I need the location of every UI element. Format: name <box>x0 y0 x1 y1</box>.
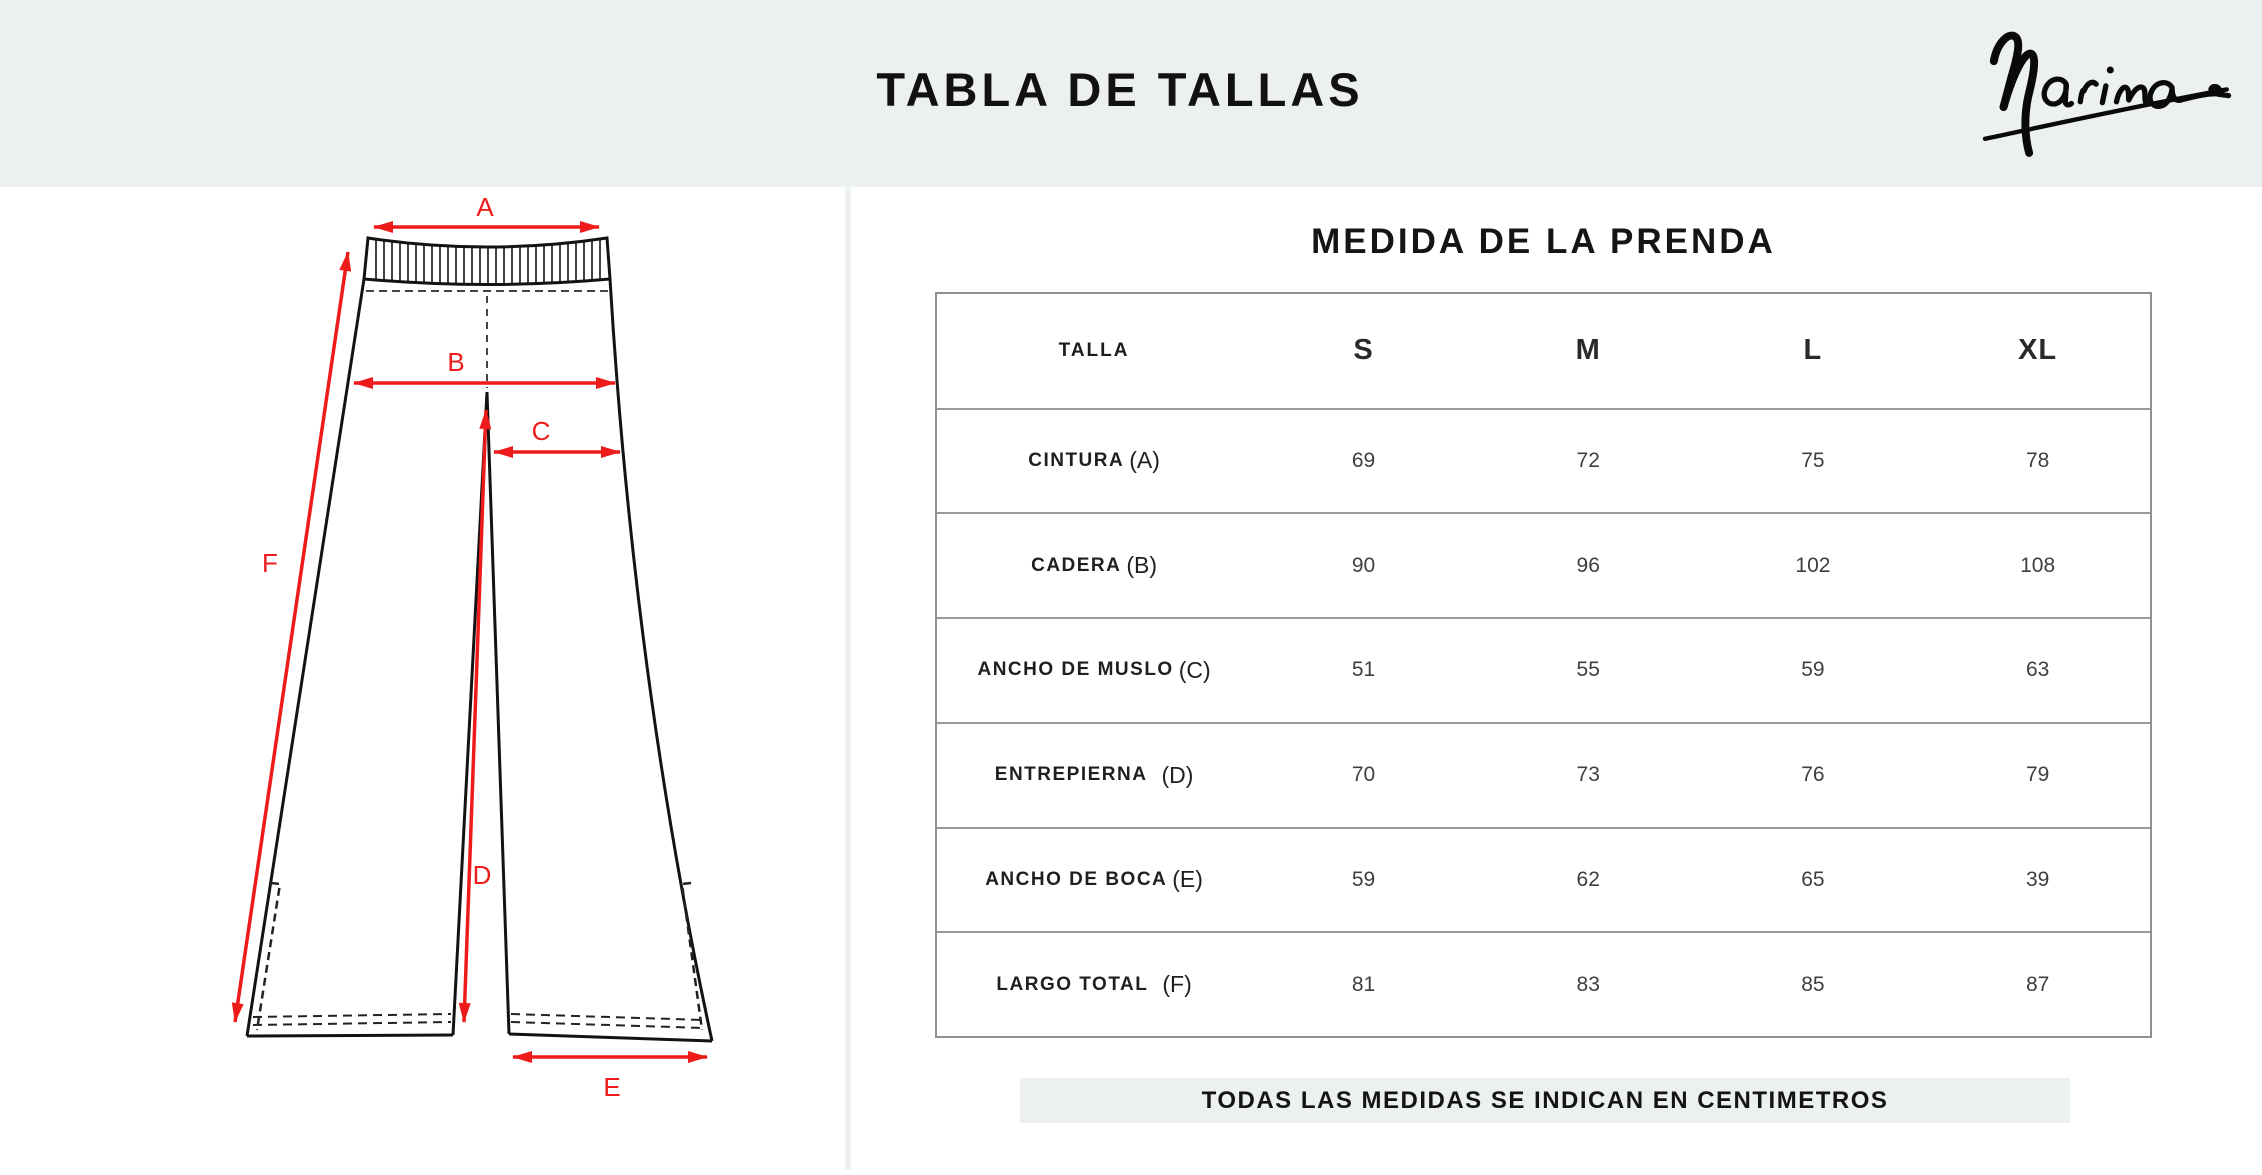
signature-m-stroke2 <box>2004 54 2035 153</box>
label-D: D <box>473 860 492 890</box>
signature-i-dot <box>2107 66 2114 73</box>
measurement-value: 79 <box>1925 724 2150 827</box>
measurement-value: 65 <box>1701 829 1926 932</box>
row-label: LARGO TOTAL (F) <box>937 933 1251 1036</box>
measurement-value: 55 <box>1476 619 1701 722</box>
arrow-F-outseam <box>235 252 348 1022</box>
size-s-header: S <box>1251 294 1476 408</box>
measurement-value: 72 <box>1476 410 1701 513</box>
size-xl-header: XL <box>1925 294 2150 408</box>
units-note-strip: TODAS LAS MEDIDAS SE INDICAN EN CENTIMET… <box>1020 1078 2070 1123</box>
measurement-value: 76 <box>1701 724 1926 827</box>
size-l-header: L <box>1701 294 1926 408</box>
size-m-header: M <box>1476 294 1701 408</box>
row-label: ANCHO DE MUSLO (C) <box>937 619 1251 722</box>
label-F: F <box>262 548 278 578</box>
row-label: CADERA (B) <box>937 514 1251 617</box>
measurement-value: 59 <box>1701 619 1926 722</box>
measurement-value: 51 <box>1251 619 1476 722</box>
row-label: CINTURA (A) <box>937 410 1251 513</box>
measurement-value: 85 <box>1701 933 1926 1036</box>
row-label-text: ANCHO DE BOCA <box>985 869 1167 891</box>
table-row-ancho-de-muslo: ANCHO DE MUSLO (C) 51 55 59 63 <box>937 617 2150 722</box>
signature-a1 <box>2044 79 2071 105</box>
label-B: B <box>447 347 464 377</box>
measurement-value: 39 <box>1925 829 2150 932</box>
arrow-D-inseam <box>464 410 486 1022</box>
hem-stitching <box>253 883 705 1030</box>
row-label-marker: (E) <box>1172 866 1203 893</box>
table-title: MEDIDA DE LA PRENDA <box>935 222 2152 262</box>
measurement-value: 83 <box>1476 933 1701 1036</box>
panel-divider <box>845 187 851 1170</box>
measurement-value: 63 <box>1925 619 2150 722</box>
table-row-largo-total: LARGO TOTAL (F) 81 83 85 87 <box>937 931 2150 1036</box>
row-label-text: ENTREPIERNA <box>995 764 1148 786</box>
row-label-marker: (F) <box>1162 971 1191 998</box>
size-table: TALLA S M L XL CINTURA (A) 69 72 75 78 C… <box>935 292 2152 1038</box>
label-E: E <box>603 1072 620 1102</box>
measurement-value: 102 <box>1701 514 1926 617</box>
label-C: C <box>532 416 551 446</box>
signature-n <box>2116 87 2145 102</box>
table-row-cadera: CADERA (B) 90 96 102 108 <box>937 512 2150 617</box>
table-row-cintura: CINTURA (A) 69 72 75 78 <box>937 408 2150 513</box>
table-row-ancho-de-boca: ANCHO DE BOCA (E) 59 62 65 39 <box>937 827 2150 932</box>
label-A: A <box>476 192 494 222</box>
measurement-value: 90 <box>1251 514 1476 617</box>
measurement-value: 78 <box>1925 410 2150 513</box>
measurement-value: 59 <box>1251 829 1476 932</box>
row-label-text: CADERA <box>1031 555 1121 577</box>
row-label-text: ANCHO DE MUSLO <box>977 659 1173 681</box>
row-label: ENTREPIERNA (D) <box>937 724 1251 827</box>
header-band: TABLA DE TALLAS <box>0 0 2262 187</box>
size-column-header: TALLA <box>937 294 1251 408</box>
measurement-value: 108 <box>1925 514 2150 617</box>
row-label: ANCHO DE BOCA (E) <box>937 829 1251 932</box>
row-label-text: CINTURA <box>1028 450 1124 472</box>
signature-i <box>2102 86 2106 103</box>
pants-measurement-diagram: A B C D E F <box>200 190 790 1130</box>
size-chart-page: TABLA DE TALLAS <box>0 0 2262 1175</box>
measurement-value: 62 <box>1476 829 1701 932</box>
page-title: TABLA DE TALLAS <box>0 62 2240 117</box>
signature-r <box>2080 82 2096 101</box>
row-label-text: LARGO TOTAL <box>996 974 1148 996</box>
row-label-marker: (A) <box>1129 447 1160 474</box>
measurement-value: 70 <box>1251 724 1476 827</box>
measurement-value: 73 <box>1476 724 1701 827</box>
units-note-text: TODAS LAS MEDIDAS SE INDICAN EN CENTIMET… <box>1202 1087 1889 1115</box>
measurement-value: 81 <box>1251 933 1476 1036</box>
table-row-entrepierna: ENTREPIERNA (D) 70 73 76 79 <box>937 722 2150 827</box>
waistband <box>364 234 610 294</box>
table-header-row: TALLA S M L XL <box>937 294 2150 408</box>
measurement-arrows <box>235 227 707 1057</box>
row-label-marker: (C) <box>1179 657 1211 684</box>
measurement-value: 75 <box>1701 410 1926 513</box>
measurement-value: 87 <box>1925 933 2150 1036</box>
brand-logo-marina-signature <box>1960 10 2250 160</box>
row-label-marker: (D) <box>1161 762 1193 789</box>
row-label-marker: (B) <box>1126 552 1157 579</box>
measurement-value: 69 <box>1251 410 1476 513</box>
pants-outline <box>247 279 712 1041</box>
measurement-value: 96 <box>1476 514 1701 617</box>
